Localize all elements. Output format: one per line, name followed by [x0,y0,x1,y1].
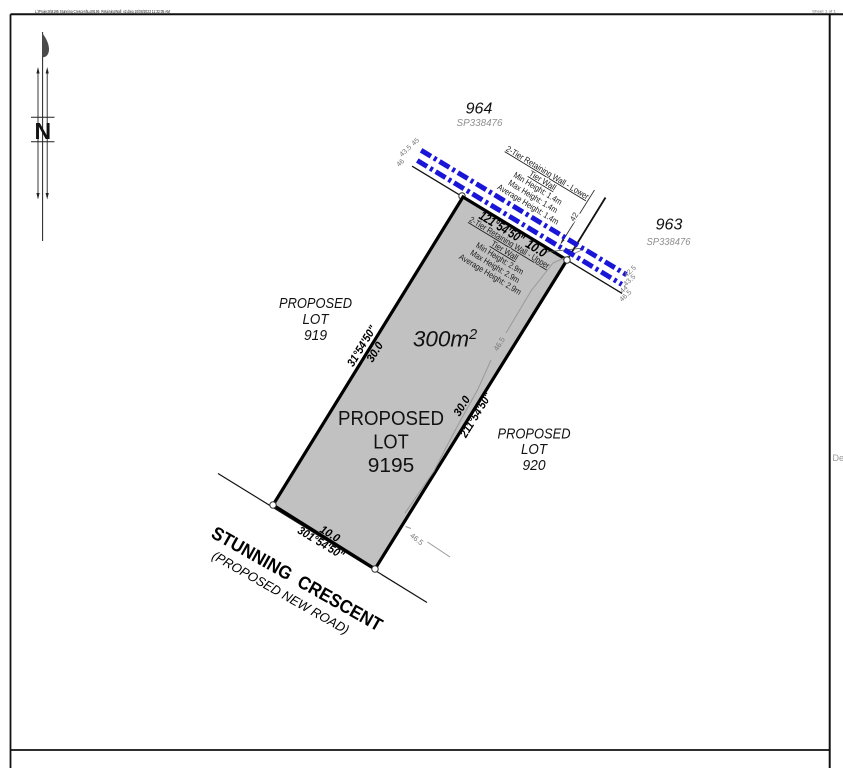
svg-text:SP338476: SP338476 [457,117,503,129]
svg-text:964: 964 [466,101,493,118]
svg-text:De: De [833,453,843,463]
svg-text:PROPOSED: PROPOSED [338,407,444,430]
svg-text:919: 919 [304,327,328,344]
svg-text:920: 920 [523,457,547,474]
svg-text:9195: 9195 [368,454,415,477]
svg-text:LOT: LOT [521,441,549,458]
svg-text:N: N [34,118,51,144]
svg-text:963: 963 [656,217,683,234]
svg-text:LOT: LOT [373,431,409,454]
svg-text:L:\Projects\9195 Stunning Cres: L:\Projects\9195 Stunning Crescent\Lot91… [35,9,170,14]
svg-text:300m2: 300m2 [413,327,477,352]
svg-text:Sheet 1 of 1: Sheet 1 of 1 [812,9,837,14]
svg-text:LOT: LOT [303,311,331,328]
svg-text:SP338476: SP338476 [647,236,691,248]
svg-text:PROPOSED: PROPOSED [498,426,571,443]
svg-text:PROPOSED: PROPOSED [279,295,352,312]
